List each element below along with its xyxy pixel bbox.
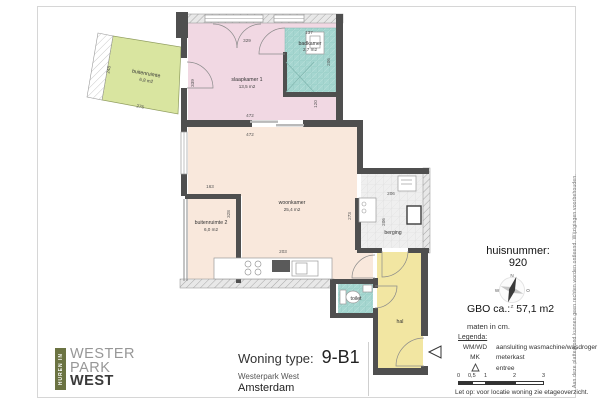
kitchen-counter xyxy=(214,258,332,279)
compass-east: O xyxy=(526,288,530,293)
label-badkamer-area: 2,7 m2 xyxy=(303,47,317,52)
warning-note: Let op: voor locatie woning zie etageove… xyxy=(455,389,588,396)
dim-slaapkamer-width: 329 xyxy=(243,38,251,43)
wall-bottom-exterior xyxy=(180,279,334,288)
dim-woonkamer-right: 273 xyxy=(347,212,352,220)
scale-tick-2: 2 xyxy=(513,373,516,379)
logo-tagline: HUREN IN xyxy=(58,353,64,385)
dim-balkon-width: 276 xyxy=(136,103,145,109)
dim-woonkamer-left: 328 xyxy=(226,210,231,218)
woning-type-label: Woning type: xyxy=(238,351,314,366)
legend-value-entree: entree xyxy=(496,365,514,372)
dim-strip: 120 xyxy=(313,100,318,108)
dim-buitenruimte2-width: 163 xyxy=(206,184,214,189)
label-berging: berging xyxy=(384,230,401,236)
label-buitenruimte2: buitenruimte 2 xyxy=(195,220,228,226)
logo-tagline-bar: HUREN IN xyxy=(55,348,66,390)
floorplan-sheet: buitenruimte 6,8 m2 slaapkamer 1 13,5 m2… xyxy=(0,0,600,400)
gbo-label: GBO ca.: xyxy=(467,303,510,315)
label-woonkamer: woonkamer xyxy=(279,200,306,206)
huisnummer-block: huisnummer: 920 xyxy=(470,245,566,269)
dim-kitchen: 203 xyxy=(279,249,287,254)
huisnummer-value: 920 xyxy=(470,257,566,269)
dim-badkamer-depth: 206 xyxy=(326,58,331,66)
westerpark-west-logo: HUREN IN WESTER PARK WEST xyxy=(55,348,135,390)
loggia-railing xyxy=(184,199,187,281)
scale-tick-1: 1 xyxy=(484,373,487,379)
meterkast-box xyxy=(407,206,421,224)
label-hal: hal xyxy=(397,319,404,325)
label-slaapkamer: slaapkamer 1 xyxy=(231,77,262,83)
label-slaapkamer-area: 13,5 m2 xyxy=(239,84,256,89)
sliding-door xyxy=(250,121,304,127)
dim-wall-top: 472 xyxy=(246,113,254,118)
compass-north: N xyxy=(510,273,513,278)
label-woonkamer-area: 25,4 m2 xyxy=(284,207,301,212)
label-toilet: toilet xyxy=(351,296,363,302)
title-divider xyxy=(368,342,369,396)
wall-berging-right-exterior xyxy=(423,168,430,253)
legend-value-wmwd: aansluiting wasmachine/wasdroger xyxy=(496,344,597,351)
scale-tick-05: 0,5 xyxy=(468,373,476,379)
dim-badkamer-width: 137 xyxy=(305,30,313,35)
logo-line3: WEST xyxy=(70,375,135,389)
project-name: Westerpark West xyxy=(238,372,360,381)
legend-value-mk: meterkast xyxy=(496,354,525,361)
legend-key-mk: MK xyxy=(458,354,492,361)
project-city: Amsterdam xyxy=(238,382,360,394)
dim-berging-depth: 206 xyxy=(381,218,386,226)
entree-arrow-icon xyxy=(429,346,441,358)
woning-type-value: 9-B1 xyxy=(322,347,360,368)
dim-berging-width: 206 xyxy=(387,191,395,196)
disclaimer-vertical-text: Aan deze plattegrond kunnen geen rechten… xyxy=(572,138,578,388)
scale-tick-0: 0 xyxy=(457,373,460,379)
gbo-line: GBO ca.:57,1 m2 xyxy=(467,303,554,315)
legend-key-wmwd: WM/WD xyxy=(458,344,492,351)
dim-slaapkamer-depth: 339 xyxy=(190,79,195,87)
gbo-value: 57,1 m2 xyxy=(516,303,554,315)
label-buitenruimte2-area: 6,0 m2 xyxy=(204,227,218,232)
compass-west: W xyxy=(495,288,500,293)
huisnummer-label: huisnummer: xyxy=(470,245,566,257)
scale-bar: 0 0,5 1 2 3 xyxy=(458,373,548,387)
title-block: Woning type: 9-B1 Westerpark West Amster… xyxy=(238,347,360,394)
dim-wall-bottom: 472 xyxy=(246,132,254,137)
units-note: maten in cm. xyxy=(467,322,510,331)
scale-tick-3: 3 xyxy=(542,373,545,379)
